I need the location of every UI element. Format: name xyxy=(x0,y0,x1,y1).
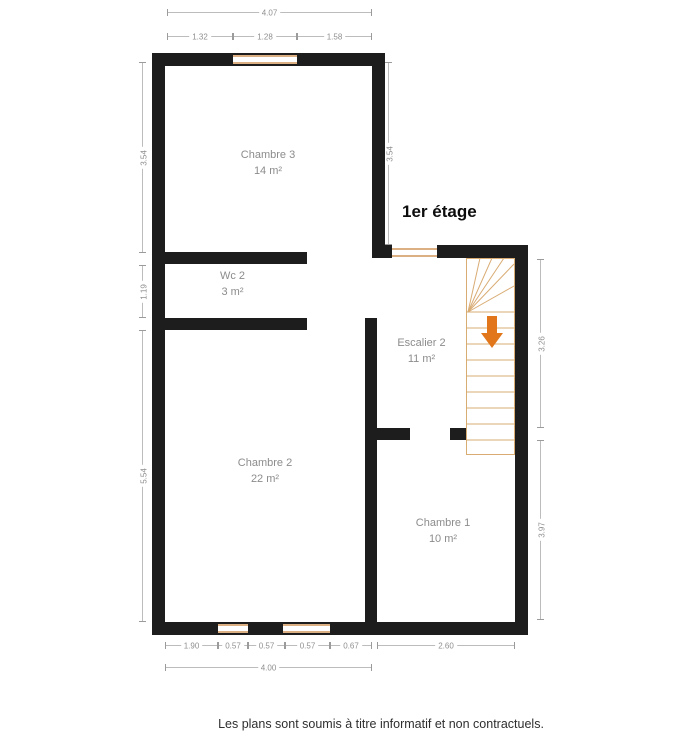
room-label-chambre-1: Chambre 1 10 m² xyxy=(383,515,503,547)
dim-tick xyxy=(371,664,372,671)
dimension-inner-chambre3-right: 3.54 xyxy=(388,62,389,245)
dimension-bottom-seg-1: 1.90 xyxy=(165,645,218,646)
dim-tick xyxy=(330,642,331,649)
dimension-top-seg-2: 1.28 xyxy=(233,36,297,37)
wall-chambre3-right xyxy=(372,53,385,250)
dimension-left-chambre3: 3.54 xyxy=(142,62,143,253)
floor-plan: Chambre 3 14 m² Wc 2 3 m² Escalier 2 11 … xyxy=(0,0,682,736)
dimension-top-seg-1: 1.32 xyxy=(167,36,233,37)
dimension-bottom-chambre1: 2.60 xyxy=(377,645,515,646)
dimension-label: 1.32 xyxy=(189,33,211,42)
window-bottom-2 xyxy=(283,624,330,633)
door-opening-stairs xyxy=(392,248,437,257)
room-name: Chambre 1 xyxy=(383,515,503,531)
dim-tick xyxy=(537,259,544,260)
dimension-bottom-seg-2: 0.57 xyxy=(218,645,248,646)
dimension-label: 1.28 xyxy=(254,33,276,42)
wall-right xyxy=(515,245,528,635)
stairs-outline xyxy=(466,258,515,455)
room-area: 3 m² xyxy=(160,284,305,300)
dim-tick xyxy=(218,642,219,649)
dim-tick xyxy=(139,317,146,318)
dimension-top-total: 4.07 xyxy=(167,12,372,13)
dim-tick xyxy=(139,252,146,253)
dimension-label: 4.00 xyxy=(258,664,280,673)
dim-tick xyxy=(514,642,515,649)
room-label-wc-2: Wc 2 3 m² xyxy=(160,268,305,300)
dim-tick xyxy=(139,265,146,266)
dimension-label: 1.19 xyxy=(139,281,148,303)
dim-tick xyxy=(165,664,166,671)
stairs xyxy=(466,258,515,455)
room-area: 22 m² xyxy=(165,471,365,487)
room-name: Escalier 2 xyxy=(377,335,466,351)
wall-chambre1-stub-left xyxy=(377,428,410,440)
dimension-bottom-seg-4: 0.57 xyxy=(285,645,330,646)
stairs-down-arrow-icon xyxy=(481,316,503,348)
dimension-label: 3.26 xyxy=(537,333,546,355)
dim-tick xyxy=(537,619,544,620)
wall-wc-bottom xyxy=(152,318,307,330)
dim-tick xyxy=(139,330,146,331)
room-name: Chambre 3 xyxy=(168,147,368,163)
dim-tick xyxy=(371,642,372,649)
dim-tick xyxy=(139,621,146,622)
wall-chambre1-stub-right xyxy=(450,428,466,440)
dimension-label: 0.57 xyxy=(222,642,244,651)
dimension-left-chambre2: 5.54 xyxy=(142,330,143,622)
dimension-label: 3.97 xyxy=(537,519,546,541)
dim-tick xyxy=(371,9,372,16)
dim-tick xyxy=(285,642,286,649)
room-label-escalier-2: Escalier 2 11 m² xyxy=(377,335,466,367)
room-label-chambre-3: Chambre 3 14 m² xyxy=(168,147,368,179)
dim-tick xyxy=(167,9,168,16)
dimension-label: 3.54 xyxy=(385,143,394,165)
dimension-right-chambre1: 3.97 xyxy=(540,440,541,620)
dimension-top-seg-3: 1.58 xyxy=(297,36,372,37)
wall-left xyxy=(152,53,165,635)
disclaimer-text: Les plans sont soumis à titre informatif… xyxy=(100,717,662,731)
dimension-left-wc: 1.19 xyxy=(142,265,143,318)
room-name: Wc 2 xyxy=(160,268,305,284)
dim-tick xyxy=(385,244,392,245)
dim-tick xyxy=(385,62,392,63)
dimension-label: 0.57 xyxy=(297,642,319,651)
dimension-label: 0.67 xyxy=(340,642,362,651)
wall-bottom xyxy=(152,622,528,635)
dimension-right-escalier: 3.26 xyxy=(540,259,541,428)
dimension-label: 0.57 xyxy=(256,642,278,651)
dimension-label: 3.54 xyxy=(139,147,148,169)
dimension-bottom-total: 4.00 xyxy=(165,667,372,668)
dim-tick xyxy=(233,33,234,40)
dim-tick xyxy=(377,642,378,649)
dimension-bottom-seg-3: 0.57 xyxy=(248,645,285,646)
room-area: 14 m² xyxy=(168,163,368,179)
dim-tick xyxy=(537,427,544,428)
dimension-bottom-seg-5: 0.67 xyxy=(330,645,372,646)
dim-tick xyxy=(167,33,168,40)
dimension-label: 1.90 xyxy=(181,642,203,651)
dim-tick xyxy=(537,440,544,441)
wall-wc-top xyxy=(152,252,307,264)
dim-tick xyxy=(371,33,372,40)
room-area: 11 m² xyxy=(377,351,466,367)
dim-tick xyxy=(297,33,298,40)
room-area: 10 m² xyxy=(383,531,503,547)
wall-stair-top-left-piece xyxy=(372,245,392,258)
dimension-label: 2.60 xyxy=(435,642,457,651)
dim-tick xyxy=(165,642,166,649)
dim-tick xyxy=(139,62,146,63)
dimension-label: 1.58 xyxy=(324,33,346,42)
wall-chambre2-divider xyxy=(365,318,377,635)
dim-tick xyxy=(248,642,249,649)
window-top xyxy=(233,55,297,64)
window-bottom-1 xyxy=(218,624,248,633)
room-name: Chambre 2 xyxy=(165,455,365,471)
dimension-label: 5.54 xyxy=(139,465,148,487)
room-label-chambre-2: Chambre 2 22 m² xyxy=(165,455,365,487)
dimension-label: 4.07 xyxy=(259,9,281,18)
floor-title: 1er étage xyxy=(402,202,477,222)
